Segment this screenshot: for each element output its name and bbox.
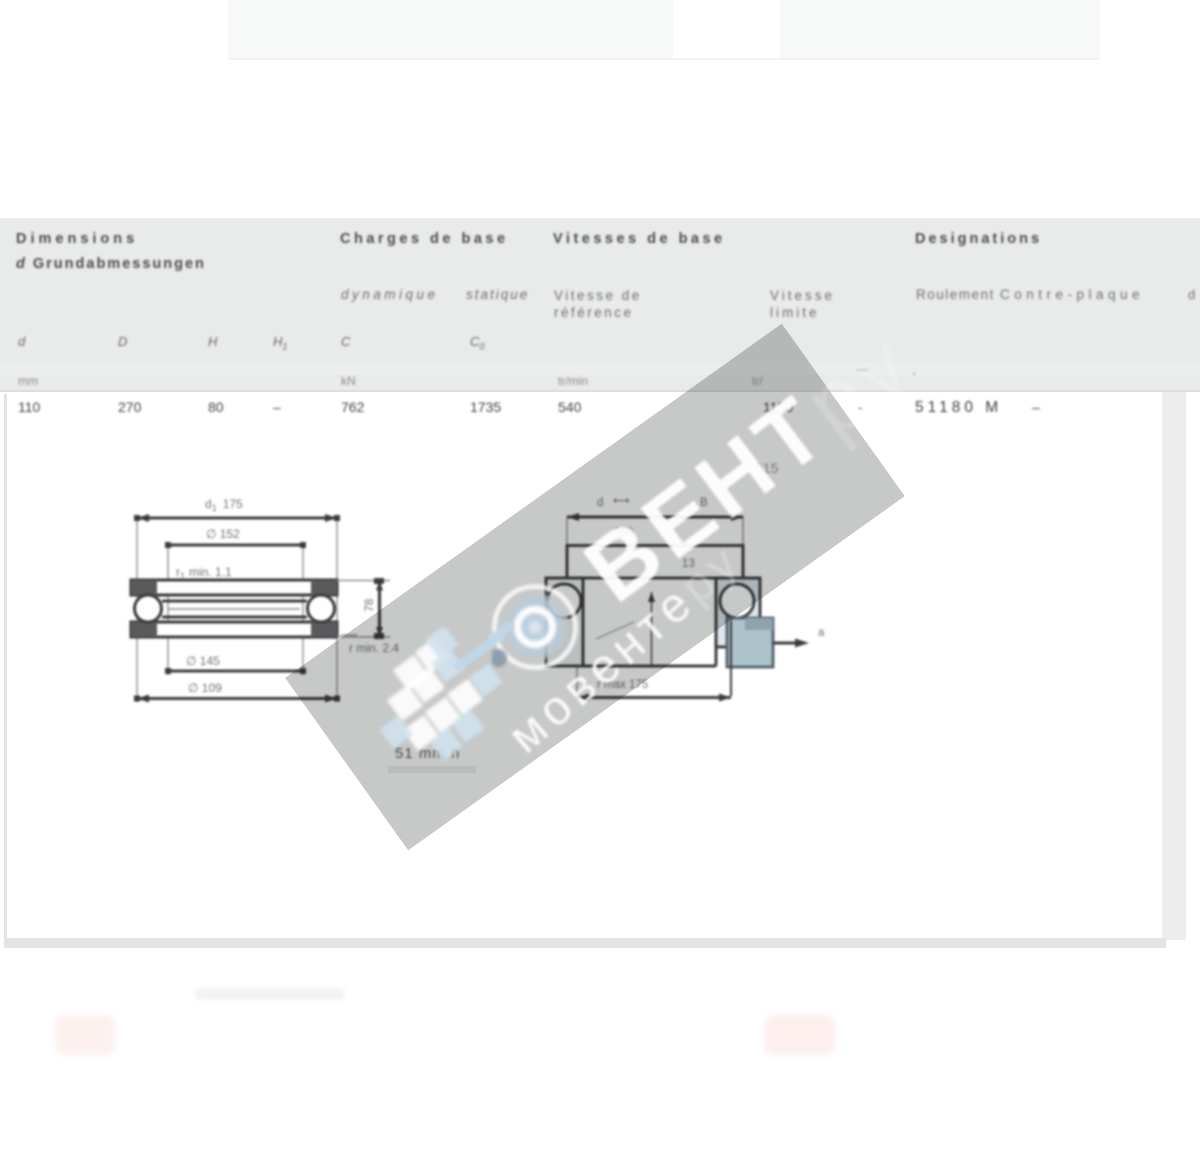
svg-text:a: a	[818, 627, 825, 639]
svg-text:∅ 145: ∅ 145	[186, 654, 220, 668]
svg-text:r1min. 1.1: r1min. 1.1	[176, 565, 232, 581]
svg-text:d1175: d1175	[205, 497, 243, 513]
svg-text:78: 78	[362, 598, 376, 612]
svg-text:∅ 109: ∅ 109	[188, 681, 222, 695]
svg-text:∅ 152: ∅ 152	[206, 527, 240, 541]
